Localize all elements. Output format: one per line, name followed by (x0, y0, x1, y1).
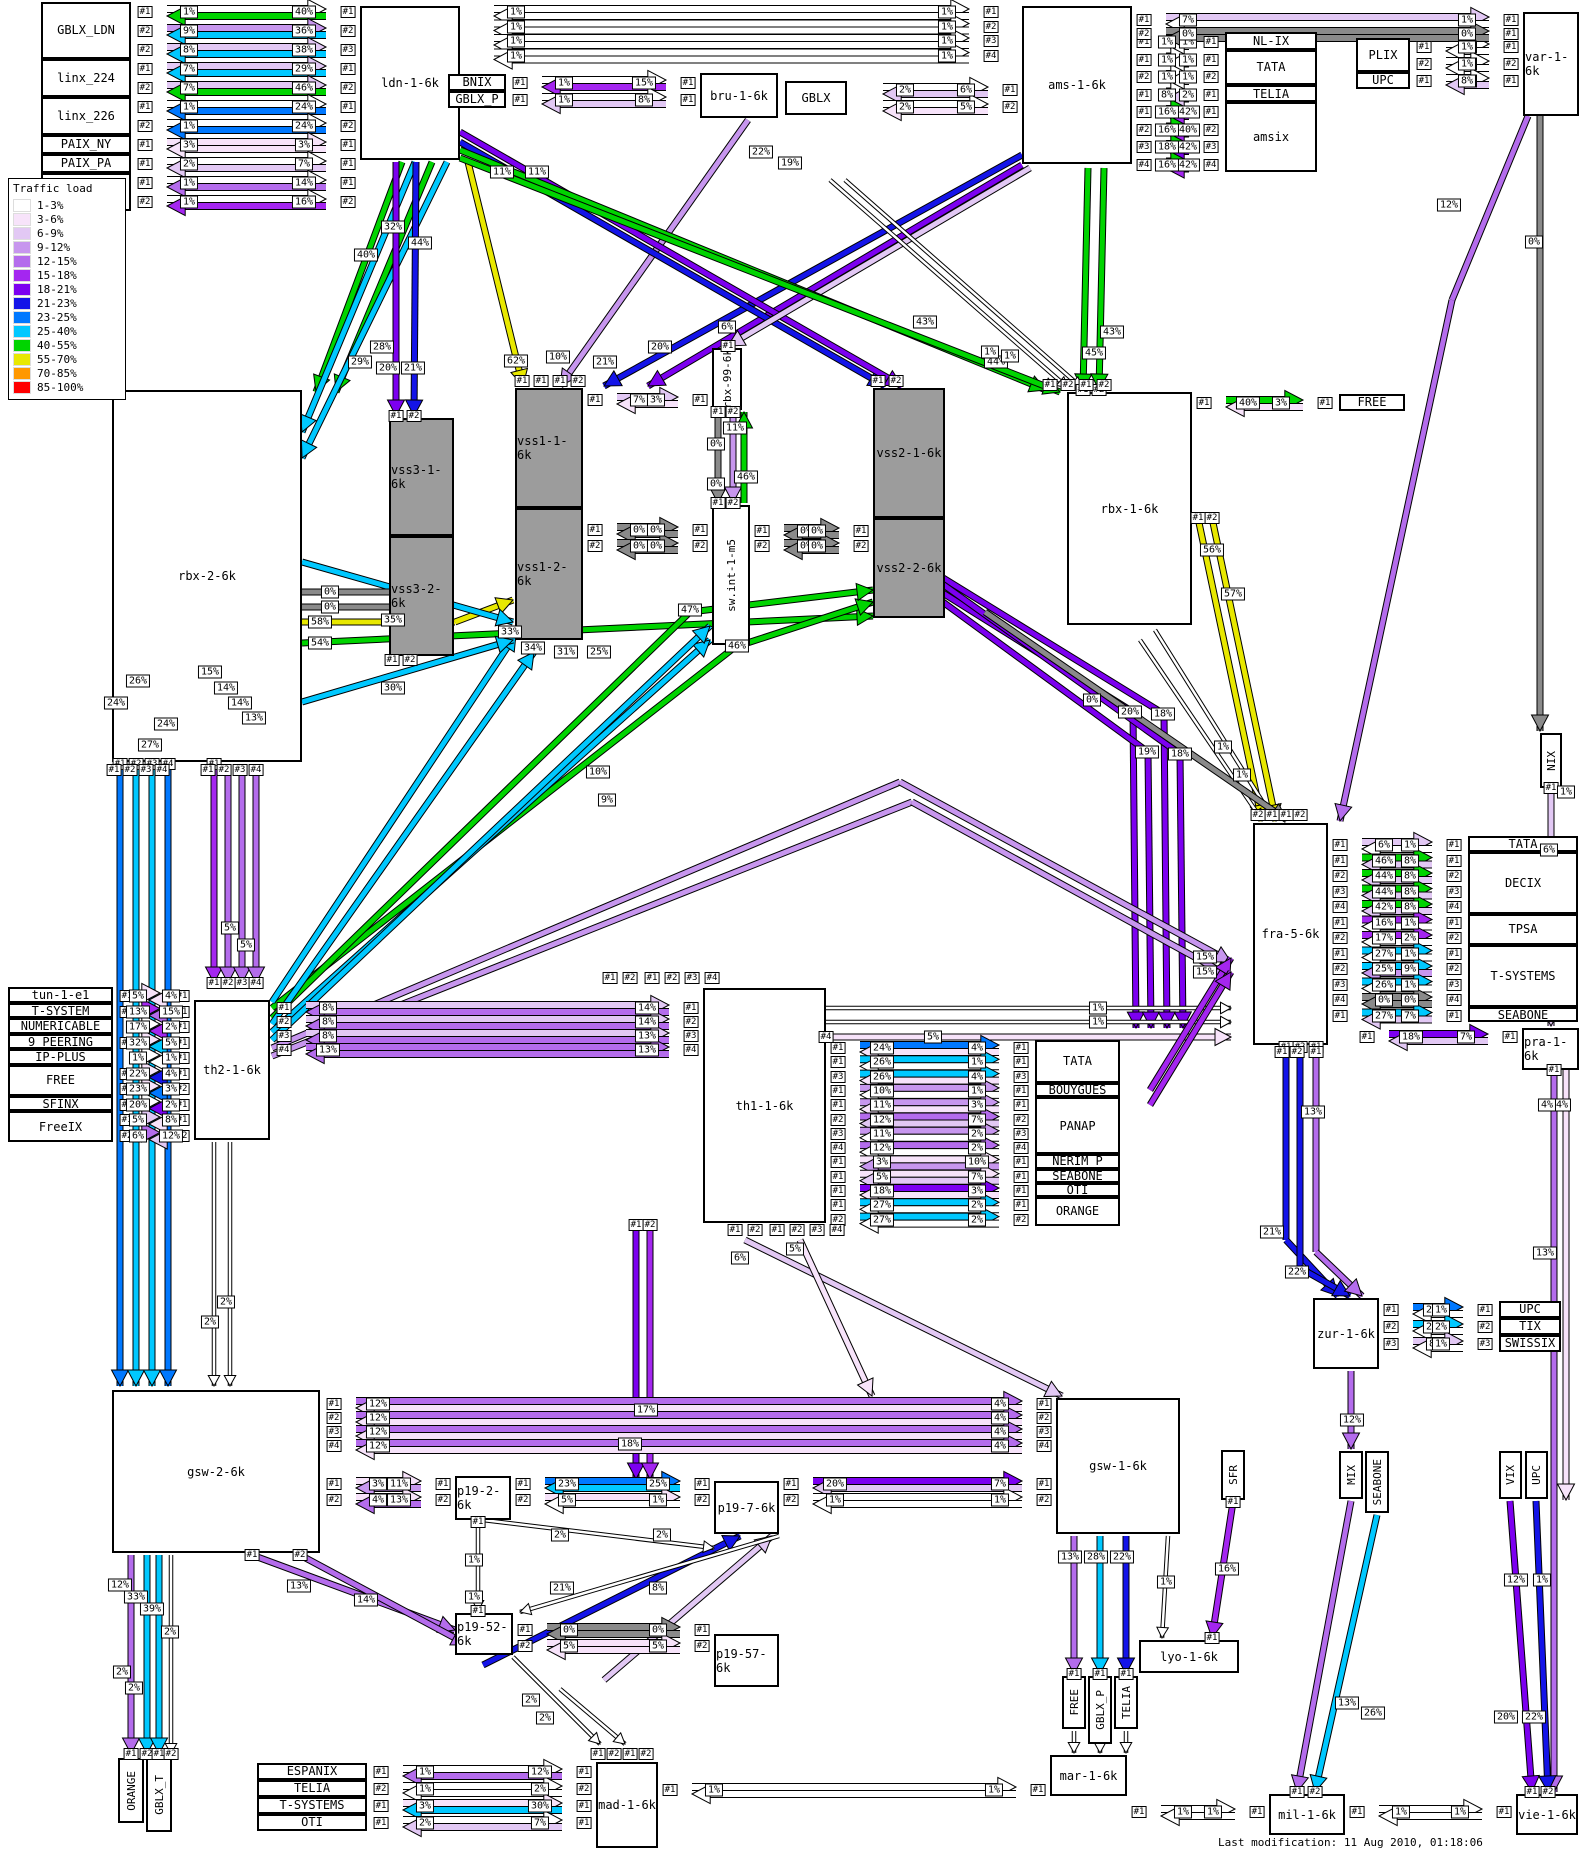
port-label: #4 (1014, 1142, 1029, 1154)
node-rbx-1-6k[interactable]: rbx-1-6k (1067, 392, 1192, 625)
port-label: #1 (1137, 14, 1152, 26)
traffic-pct-label: 34% (521, 642, 545, 655)
traffic-pct-label: 16% (1372, 916, 1396, 929)
traffic-pct-label: 13% (287, 1580, 311, 1593)
port-label: #1 (1132, 1806, 1147, 1818)
traffic-pct-label: 7% (630, 394, 648, 407)
node-label: vie-1-6k (1518, 1808, 1576, 1822)
traffic-pct-label: 26% (1361, 1707, 1385, 1720)
port-label: #1 (984, 6, 999, 18)
traffic-pct-label: 1% (162, 1052, 180, 1065)
port-label: #1 (1333, 1010, 1348, 1022)
port-label: #1 (1037, 1478, 1052, 1490)
traffic-pct-label: 13% (635, 1030, 659, 1043)
traffic-pct-label: 16% (1155, 158, 1179, 171)
node-label: GBLX_P (1094, 1690, 1107, 1730)
node-gsw-1-6k[interactable]: gsw-1-6k (1056, 1398, 1180, 1534)
traffic-pct-label: 2% (416, 1817, 434, 1830)
node-ldn-1-6k[interactable]: ldn-1-6k (360, 6, 460, 160)
traffic-pct-label: 6% (1375, 839, 1393, 852)
traffic-pct-label: 4% (991, 1412, 1009, 1425)
port-label: #3 (1333, 979, 1348, 991)
traffic-pct-label: 24% (870, 1042, 894, 1055)
traffic-pct-label: 20% (1118, 706, 1142, 719)
node-p19-7-6k[interactable]: p19-7-6k (714, 1481, 779, 1534)
traffic-pct-label: 24% (292, 120, 316, 133)
port-label: #2 (643, 1219, 658, 1231)
traffic-pct-label: 4% (968, 1042, 986, 1055)
legend-entry: 6-9% (13, 227, 121, 240)
traffic-pct-label: 2% (531, 1783, 549, 1796)
node-UPC: UPC (1525, 1451, 1548, 1499)
traffic-pct-label: 1% (180, 101, 198, 114)
port-label: #4 (277, 1044, 292, 1056)
traffic-pct-label: 1% (1174, 1806, 1192, 1819)
port-label: #1 (1447, 839, 1462, 851)
port-label: #1 (1504, 75, 1519, 87)
node-mar-1-6k[interactable]: mar-1-6k (1050, 1755, 1127, 1796)
port-label: #1 (588, 524, 603, 536)
traffic-pct-label: 2% (551, 1529, 569, 1542)
legend-swatch (13, 213, 31, 226)
traffic-pct-label: 14% (635, 1002, 659, 1015)
port-label: #2 (1014, 1214, 1029, 1226)
node-vss1-1-6k[interactable]: vss1-1-6k (515, 388, 583, 508)
port-label: #1 (553, 375, 568, 387)
port-label: #1 (107, 764, 122, 776)
traffic-pct-label: 31% (554, 646, 578, 659)
port-label: #2 (1003, 101, 1018, 113)
traffic-pct-label: 23% (555, 1478, 579, 1491)
traffic-pct-label: 22% (1110, 1551, 1134, 1564)
port-label: #1 (1003, 84, 1018, 96)
port-label: #1 (755, 525, 770, 537)
peer-gblx: GBLX (785, 81, 847, 115)
traffic-pct-label: 1% (180, 177, 198, 190)
traffic-pct-label: 7% (180, 63, 198, 76)
port-label: #2 (138, 120, 153, 132)
port-label: #4 (830, 1224, 845, 1236)
traffic-pct-label: 45% (1082, 347, 1106, 360)
port-label: #1 (663, 1784, 678, 1796)
node-th1-1-6k[interactable]: th1-1-6k (703, 988, 826, 1223)
port-label: #1 (138, 139, 153, 151)
traffic-pct-label: 1% (1458, 58, 1476, 71)
port-label: #1 (1014, 1056, 1029, 1068)
traffic-pct-label: 13% (1301, 1106, 1325, 1119)
port-label: #2 (639, 1748, 654, 1760)
port-label: #1 (1079, 379, 1094, 391)
traffic-pct-label: 5% (162, 1036, 180, 1049)
port-label: #4 (249, 764, 264, 776)
port-label: #4 (249, 977, 264, 989)
traffic-pct-label: 0% (707, 438, 725, 451)
node-label: p19-52-6k (457, 1620, 511, 1648)
traffic-pct-label: 15% (1193, 951, 1217, 964)
node-TELIA: TELIA (1114, 1676, 1138, 1729)
port-label: #2 (665, 972, 680, 984)
node-label: bru-1-6k (710, 89, 768, 103)
node-label: pra-1-6k (1524, 1035, 1577, 1063)
traffic-pct-label: 16% (1155, 123, 1179, 136)
port-label: #3 (831, 1071, 846, 1083)
traffic-pct-label: 1% (416, 1766, 434, 1779)
port-label: #1 (1031, 1784, 1046, 1796)
traffic-pct-label: 2% (162, 1021, 180, 1034)
node-zur-1-6k[interactable]: zur-1-6k (1313, 1298, 1379, 1369)
peer-tix: TIX (1499, 1318, 1561, 1335)
node-mil-1-6k[interactable]: mil-1-6k (1269, 1794, 1345, 1835)
port-label: #1 (1447, 948, 1462, 960)
traffic-pct-label: 14% (292, 177, 316, 190)
traffic-pct-label: 1% (1458, 14, 1476, 27)
port-label: #2 (341, 196, 356, 208)
traffic-pct-label: 1% (981, 346, 999, 359)
traffic-pct-label: 32% (126, 1036, 150, 1049)
node-var-1-6k[interactable]: var-1-6k (1523, 12, 1579, 116)
port-label: #1 (1290, 1786, 1305, 1798)
traffic-pct-label: 18% (1168, 748, 1192, 761)
traffic-pct-label: 10% (546, 351, 570, 364)
traffic-pct-label: 16% (1215, 1563, 1239, 1576)
traffic-pct-label: 13% (387, 1494, 411, 1507)
port-label: #1 (1014, 1185, 1029, 1197)
peer-nl-ix: NL-IX (1225, 32, 1317, 50)
port-label: #2 (138, 25, 153, 37)
traffic-pct-label: 1% (507, 49, 525, 62)
port-label: #2 (1333, 963, 1348, 975)
peer-free: FREE (8, 1065, 113, 1096)
port-label: #1 (1014, 1156, 1029, 1168)
node-lyo-1-6k[interactable]: lyo-1-6k (1139, 1640, 1239, 1673)
port-label: #3 (1478, 1338, 1493, 1350)
traffic-pct-label: 12% (1504, 1574, 1528, 1587)
traffic-pct-label: 12% (366, 1440, 390, 1453)
traffic-pct-label: 26% (870, 1070, 894, 1083)
traffic-pct-label: 11% (870, 1099, 894, 1112)
port-label: #1 (1384, 1304, 1399, 1316)
node-MIX: MIX (1339, 1451, 1363, 1499)
traffic-pct-label: 10% (870, 1084, 894, 1097)
port-label: #1 (1014, 1099, 1029, 1111)
traffic-pct-label: 2% (1401, 932, 1419, 945)
port-label: #1 (623, 1748, 638, 1760)
port-label: #2 (1384, 1321, 1399, 1333)
port-label: #2 (784, 1494, 799, 1506)
traffic-pct-label: 9% (598, 794, 616, 807)
port-label: #1 (1014, 1171, 1029, 1183)
traffic-pct-label: 1% (1392, 1806, 1410, 1819)
port-label: #2 (138, 82, 153, 94)
node-GBLX_P: GBLX_P (1088, 1676, 1112, 1744)
port-label: #2 (341, 82, 356, 94)
traffic-pct-label: 38% (292, 44, 316, 57)
port-label: #1 (1478, 1304, 1493, 1316)
traffic-pct-label: 46% (292, 82, 316, 95)
traffic-pct-label: 1% (1432, 1338, 1450, 1351)
traffic-pct-label: 26% (126, 675, 150, 688)
node-rbx-2-6k[interactable]: rbx-2-6k (112, 390, 302, 762)
port-label: #2 (684, 1016, 699, 1028)
traffic-pct-label: 1% (507, 20, 525, 33)
port-label: #2 (403, 654, 418, 666)
traffic-pct-label: 39% (140, 1603, 164, 1616)
traffic-pct-label: 0% (1083, 694, 1101, 707)
traffic-pct-label: 22% (1285, 1266, 1309, 1279)
traffic-pct-label: 4% (1538, 1099, 1556, 1112)
traffic-pct-label: 10% (586, 766, 610, 779)
node-fra-5-6k[interactable]: fra-5-6k (1253, 823, 1328, 1045)
traffic-pct-label: 33% (498, 626, 522, 639)
legend-swatch (13, 297, 31, 310)
port-label: #2 (277, 1016, 292, 1028)
traffic-pct-label: 0% (1525, 236, 1543, 249)
peer-freeix: FreeIX (8, 1111, 113, 1142)
peer-linx_224: linx_224 (41, 59, 131, 97)
port-label: #1 (1093, 1668, 1108, 1680)
port-label: #2 (1137, 71, 1152, 83)
traffic-pct-label: 0% (1179, 28, 1197, 41)
traffic-pct-label: 20% (823, 1478, 847, 1491)
legend-entry: 12-15% (13, 255, 121, 268)
port-label: #1 (1333, 948, 1348, 960)
traffic-pct-label: 18% (870, 1185, 894, 1198)
traffic-pct-label: 30% (528, 1800, 552, 1813)
traffic-pct-label: 1% (985, 1784, 1003, 1797)
traffic-pct-label: 4% (968, 1070, 986, 1083)
port-label: #1 (1204, 89, 1219, 101)
port-label: #3 (235, 977, 250, 989)
legend-swatch (13, 311, 31, 324)
peer-ip-plus: IP-PLUS (8, 1049, 113, 1065)
traffic-pct-label: 2% (968, 1127, 986, 1140)
traffic-pct-label: 3% (295, 139, 313, 152)
port-label: #1 (1204, 54, 1219, 66)
traffic-pct-label: 36% (292, 25, 316, 38)
legend-entry: 1-3% (13, 199, 121, 212)
node-th2-1-6k[interactable]: th2-1-6k (194, 1000, 270, 1140)
port-label: #1 (327, 1478, 342, 1490)
node-bru-1-6k[interactable]: bru-1-6k (700, 73, 778, 118)
port-label: #1 (1447, 917, 1462, 929)
traffic-pct-label: 3% (647, 394, 665, 407)
port-label: #2 (138, 44, 153, 56)
port-label: #1 (577, 1817, 592, 1829)
port-label: #4 (1333, 901, 1348, 913)
traffic-pct-label: 21% (401, 362, 425, 375)
port-label: #2 (571, 375, 586, 387)
traffic-pct-label: 5% (558, 1494, 576, 1507)
peer-gblx_p: GBLX_P (448, 91, 506, 108)
port-label: #3 (1014, 1128, 1029, 1140)
traffic-pct-label: 12% (366, 1426, 390, 1439)
traffic-pct-label: 0% (647, 540, 665, 553)
traffic-pct-label: 5% (560, 1640, 578, 1653)
port-label: #4 (684, 1044, 699, 1056)
traffic-pct-label: 8% (162, 1114, 180, 1127)
port-label: #2 (1478, 1321, 1493, 1333)
traffic-pct-label: 3% (369, 1478, 387, 1491)
port-label: #1 (1067, 1668, 1082, 1680)
port-label: #1 (695, 1624, 710, 1636)
traffic-pct-label: 2% (522, 1694, 540, 1707)
traffic-pct-label: 1% (465, 1591, 483, 1604)
port-label: #1 (681, 94, 696, 106)
port-label: #2 (695, 1640, 710, 1652)
peer-free: FREE (1339, 394, 1405, 411)
traffic-pct-label: 17% (634, 1404, 658, 1417)
port-label: #3 (139, 764, 154, 776)
traffic-pct-label: 8% (1401, 870, 1419, 883)
port-label: #4 (984, 50, 999, 62)
port-label: #2 (374, 1783, 389, 1795)
node-ams-1-6k[interactable]: ams-1-6k (1022, 6, 1132, 164)
port-label: #1 (389, 410, 404, 422)
port-label: #3 (1384, 1338, 1399, 1350)
node-vss1-2-6k[interactable]: vss1-2-6k (515, 508, 583, 640)
node-mad-1-6k[interactable]: mad-1-6k (596, 1762, 658, 1848)
port-label: #1 (1014, 1085, 1029, 1097)
port-label: #3 (1014, 1071, 1029, 1083)
node-label: ams-1-6k (1048, 78, 1106, 92)
legend-range: 1-3% (37, 199, 64, 212)
port-label: #1 (138, 158, 153, 170)
traffic-pct-label: 1% (1451, 1806, 1469, 1819)
traffic-pct-label: 44% (1372, 870, 1396, 883)
traffic-pct-label: 18% (1155, 141, 1179, 154)
traffic-pct-label: 22% (126, 1067, 150, 1080)
port-label: #1 (1503, 1031, 1518, 1043)
port-label: #3 (831, 1128, 846, 1140)
node-label: VIX (1504, 1465, 1517, 1485)
node-label: ldn-1-6k (381, 76, 439, 90)
legend-entry: 15-18% (13, 269, 121, 282)
node-p19-2-6k[interactable]: p19-2-6k (455, 1476, 511, 1520)
traffic-pct-label: 12% (366, 1412, 390, 1425)
traffic-pct-label: 0% (560, 1624, 578, 1637)
node-vss3-2-6k[interactable]: vss3-2-6k (389, 536, 454, 656)
port-label: #1 (1275, 1046, 1290, 1058)
port-label: #1 (513, 94, 528, 106)
traffic-pct-label: 8% (1401, 885, 1419, 898)
traffic-pct-label: 12% (528, 1766, 552, 1779)
traffic-pct-label: 17% (126, 1021, 150, 1034)
peer-t-systems: T-SYSTEMS (1468, 945, 1578, 1007)
traffic-pct-label: 1% (1401, 839, 1419, 852)
legend-entry: 21-23% (13, 297, 121, 310)
traffic-pct-label: 16% (1155, 106, 1179, 119)
node-label: th2-1-6k (203, 1063, 261, 1077)
traffic-pct-label: 46% (725, 640, 749, 653)
traffic-pct-label: 44% (408, 237, 432, 250)
legend-range: 25-40% (37, 325, 77, 338)
traffic-pct-label: 40% (292, 6, 316, 19)
legend-entry: 23-25% (13, 311, 121, 324)
port-label: #1 (341, 101, 356, 113)
traffic-pct-label: 3% (180, 139, 198, 152)
node-vss3-1-6k[interactable]: vss3-1-6k (389, 418, 454, 536)
port-label: #1 (207, 977, 222, 989)
port-label: #4 (1447, 994, 1462, 1006)
port-label: #1 (1525, 1786, 1540, 1798)
port-label: #1 (341, 177, 356, 189)
port-label: #2 (1447, 963, 1462, 975)
traffic-pct-label: 5% (957, 101, 975, 114)
node-label: MIX (1345, 1465, 1358, 1485)
legend-range: 55-70% (37, 353, 77, 366)
peer-nerim_p: NERIM_P (1035, 1154, 1120, 1168)
node-p19-52-6k[interactable]: p19-52-6k (455, 1613, 513, 1655)
port-label: #1 (245, 1549, 260, 1561)
traffic-pct-label: 1% (507, 6, 525, 19)
port-label: #1 (831, 1171, 846, 1183)
port-label: #1 (513, 77, 528, 89)
port-label: #2 (1447, 870, 1462, 882)
port-label: #1 (138, 6, 153, 18)
port-label: #2 (327, 1412, 342, 1424)
legend-range: 21-23% (37, 297, 77, 310)
port-label: #1 (1547, 1064, 1562, 1076)
port-label: #1 (831, 1185, 846, 1197)
port-label: #1 (516, 1478, 531, 1490)
traffic-pct-label: 6% (1540, 844, 1558, 857)
port-label: #1 (327, 1398, 342, 1410)
peer-orange: ORANGE (1035, 1197, 1120, 1226)
peer-t-system: T-SYSTEM (8, 1003, 113, 1019)
traffic-pct-label: 8% (1401, 901, 1419, 914)
traffic-pct-label: 0% (1458, 28, 1476, 41)
traffic-pct-label: 27% (138, 739, 162, 752)
traffic-pct-label: 2% (968, 1199, 986, 1212)
port-label: #3 (810, 1224, 825, 1236)
node-label: UPC (1530, 1465, 1543, 1485)
traffic-pct-label: 42% (1176, 158, 1200, 171)
node-label: rbx-2-6k (178, 569, 236, 583)
traffic-pct-label: 1% (1401, 916, 1419, 929)
node-label: vss1-2-6k (517, 560, 581, 588)
traffic-pct-label: 21% (550, 1582, 574, 1595)
port-label: #2 (1504, 58, 1519, 70)
traffic-pct-label: 57% (1221, 588, 1245, 601)
node-label: sw.int-1-m5 (725, 539, 738, 612)
node-vss2-2-6k[interactable]: vss2-2-6k (873, 518, 945, 618)
traffic-pct-label: 11% (870, 1127, 894, 1140)
port-label: #3 (1333, 886, 1348, 898)
port-label: #1 (728, 1224, 743, 1236)
traffic-pct-label: 22% (749, 146, 773, 159)
traffic-pct-label: 3% (873, 1156, 891, 1169)
traffic-pct-label: 1% (1158, 36, 1176, 49)
peer-tpsa: TPSA (1468, 914, 1578, 945)
node-vss2-1-6k[interactable]: vss2-1-6k (873, 388, 945, 518)
traffic-pct-label: 62% (504, 355, 528, 368)
port-label: #1 (1197, 397, 1212, 409)
traffic-pct-label: 2% (896, 101, 914, 114)
port-label: #2 (1290, 1046, 1305, 1058)
node-gsw-2-6k[interactable]: gsw-2-6k (112, 1390, 320, 1553)
port-label: #2 (726, 406, 741, 418)
node-p19-57-6k[interactable]: p19-57-6k (714, 1634, 779, 1687)
traffic-pct-label: 42% (1372, 901, 1396, 914)
node-vie-1-6k[interactable]: vie-1-6k (1516, 1794, 1578, 1835)
traffic-pct-label: 40% (1176, 123, 1200, 136)
node-label: vss2-2-6k (876, 561, 941, 575)
traffic-pct-label: 15% (159, 1005, 183, 1018)
port-label: #2 (221, 977, 236, 989)
traffic-pct-label: 1% (968, 1084, 986, 1097)
legend-swatch (13, 269, 31, 282)
legend-range: 9-12% (37, 241, 70, 254)
